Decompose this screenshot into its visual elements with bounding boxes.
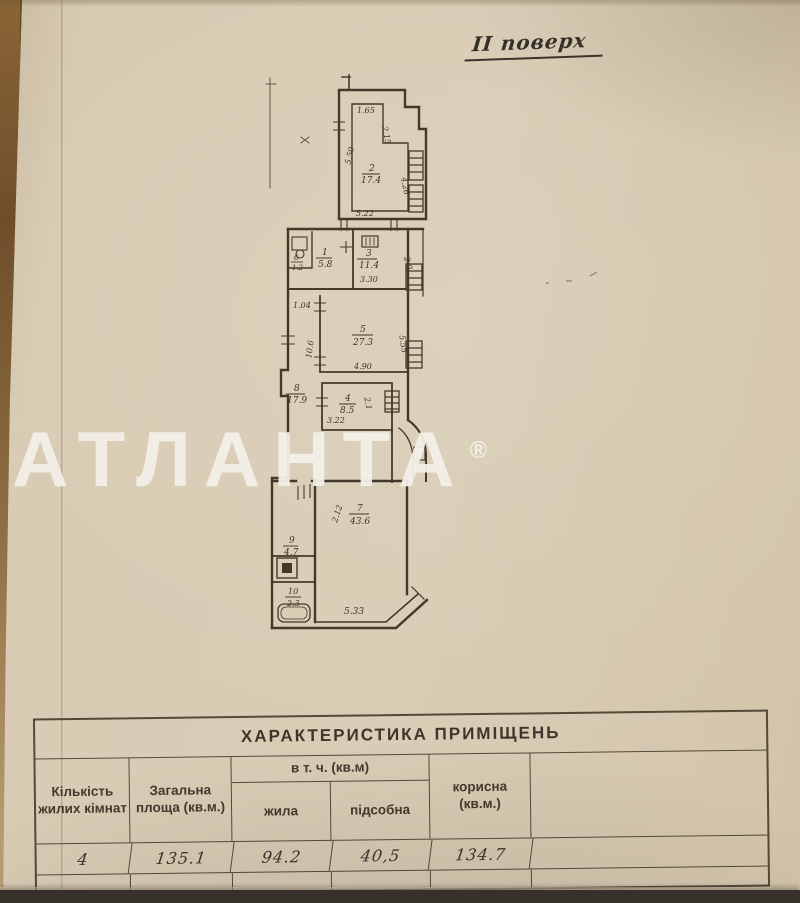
room-number: 3: [366, 249, 372, 259]
value-living-area: 94.2: [231, 841, 334, 872]
room-number: 5: [360, 325, 366, 335]
room-area: 1.2: [292, 264, 304, 272]
room-number: 10: [288, 587, 298, 596]
scanned-document-photo: ІІ поверх: [0, 0, 800, 903]
dim-label: 4.26: [399, 175, 411, 195]
room-labels: 2 17.4 1 5.8 3 11.4 6 1.2 5 27.3 8 17.9 …: [283, 164, 381, 608]
room-area: 27.3: [352, 338, 373, 348]
dim-label: 1.04: [293, 301, 311, 310]
room-area: 43.6: [349, 517, 370, 527]
dim-label: 10.6: [304, 340, 315, 359]
room-area: 2.3: [286, 599, 300, 608]
dimension-labels: 1.65 2.15 5.50 4.26 5.22 3.30 2.0 1.04 4…: [293, 106, 414, 617]
dim-label: 2.1: [362, 395, 373, 410]
dim-label: 3.30: [360, 275, 378, 284]
table-header: Кількість жилих кімнат Загальна площа (к…: [35, 751, 767, 845]
room-number: 2: [368, 164, 375, 174]
dim-label: 5.33: [344, 607, 364, 617]
room-number: 1: [322, 248, 328, 258]
dim-label: 2.0: [402, 255, 414, 271]
room-number: 8: [294, 384, 300, 394]
header-total-area: Загальна площа (кв.м.): [129, 757, 232, 842]
dim-label: 2.15: [380, 125, 393, 145]
dim-label: 2.12: [330, 504, 344, 525]
value-total-area: 135.1: [129, 842, 235, 873]
header-useful-area: корисна (кв.м.): [429, 753, 531, 838]
dim-label: 5.55: [397, 334, 408, 353]
header-including-group: в т. ч. (кв.м): [231, 755, 429, 783]
header-utility-area: підсобна: [331, 781, 431, 840]
agency-watermark: АТЛАНТА®: [12, 420, 572, 498]
header-room-count: Кількість жилих кімнат: [35, 758, 130, 843]
room-area: 17.9: [287, 396, 307, 406]
room-number: 4: [344, 394, 351, 404]
header-living-area: жила: [232, 782, 332, 841]
dim-label: 4.90: [353, 362, 372, 371]
dim-label: 1.65: [357, 106, 375, 115]
room-number: 9: [289, 536, 295, 546]
room-number: 6: [294, 254, 299, 262]
value-empty-column: [531, 836, 767, 869]
stray-marks: [546, 272, 597, 283]
room-number: 7: [357, 504, 363, 514]
room-area: 4.7: [283, 548, 299, 558]
dark-table-surface: [0, 890, 800, 903]
value-room-count: 4: [35, 843, 133, 874]
value-utility-area: 40,5: [330, 840, 433, 871]
room-area: 11.4: [359, 261, 379, 271]
header-empty-column: [530, 751, 767, 838]
agency-watermark-name: АТЛАНТА: [12, 415, 468, 503]
characteristics-table: ХАРАКТЕРИСТИКА ПРИМІЩЕНЬ Кількість жилих…: [33, 710, 770, 896]
dim-label: 5.50: [344, 146, 357, 165]
room-area: 17.4: [361, 176, 381, 186]
value-useful-area: 134.7: [429, 838, 534, 869]
dim-label: 5.22: [356, 209, 374, 218]
registered-trademark-icon: ®: [470, 437, 488, 464]
room-area: 5.8: [318, 260, 333, 270]
